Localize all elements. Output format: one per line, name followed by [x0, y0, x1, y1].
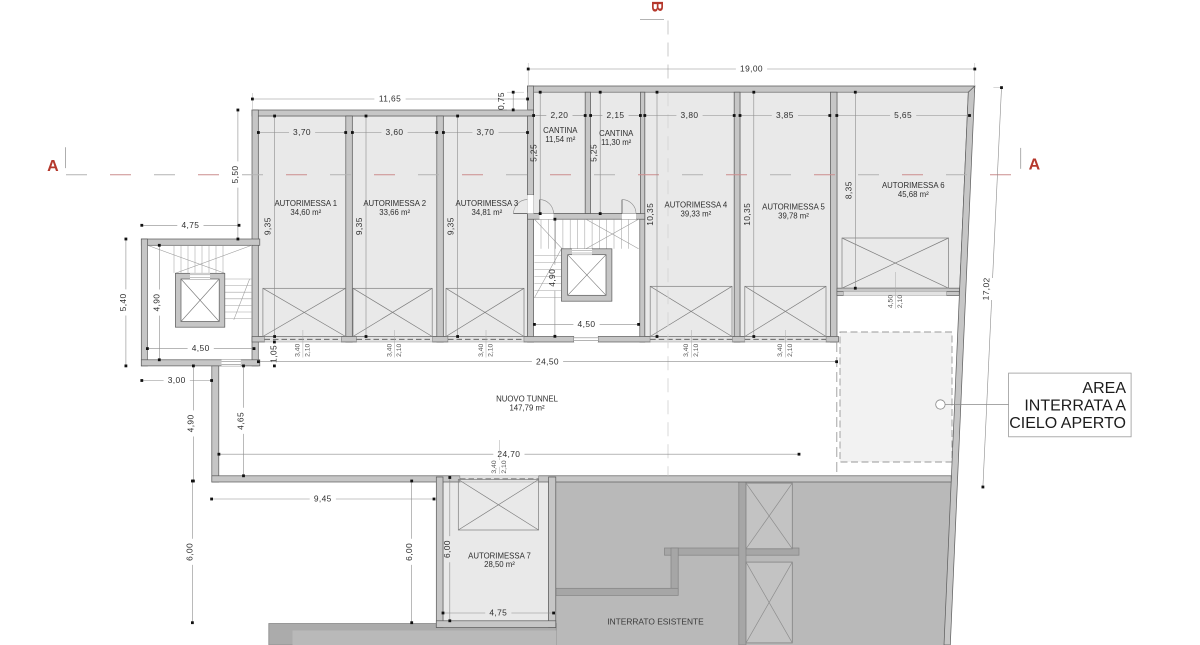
svg-text:2,10: 2,10	[305, 343, 312, 356]
svg-text:5,65: 5,65	[894, 110, 912, 120]
svg-text:4,50: 4,50	[578, 319, 596, 329]
svg-text:1,05: 1,05	[269, 345, 279, 363]
svg-text:AUTORIMESSA 4: AUTORIMESSA 4	[665, 201, 728, 210]
svg-text:0,75: 0,75	[496, 92, 506, 110]
svg-text:4,90: 4,90	[186, 414, 196, 432]
svg-text:6,00: 6,00	[185, 543, 195, 561]
svg-text:4,75: 4,75	[181, 220, 199, 230]
svg-text:6,00: 6,00	[442, 540, 452, 558]
svg-text:9,35: 9,35	[446, 217, 456, 235]
svg-text:10,35: 10,35	[645, 203, 655, 226]
svg-text:8,35: 8,35	[843, 181, 853, 199]
svg-text:5,50: 5,50	[230, 166, 240, 184]
svg-text:A: A	[47, 158, 59, 175]
svg-text:3,40: 3,40	[295, 343, 302, 356]
svg-text:24,50: 24,50	[536, 356, 559, 366]
svg-text:INTERRATO ESISTENTE: INTERRATO ESISTENTE	[607, 617, 704, 627]
svg-text:NUOVO TUNNEL: NUOVO TUNNEL	[496, 395, 558, 404]
svg-text:3,00: 3,00	[168, 375, 186, 385]
svg-text:INTERRATA A: INTERRATA A	[1024, 398, 1126, 415]
svg-text:3,70: 3,70	[476, 127, 494, 137]
svg-text:AREA: AREA	[1082, 380, 1126, 397]
svg-text:39,78 m²: 39,78 m²	[778, 212, 809, 221]
svg-text:5,40: 5,40	[118, 293, 128, 311]
svg-text:39,33 m²: 39,33 m²	[681, 210, 712, 219]
svg-text:11,65: 11,65	[379, 94, 401, 104]
svg-text:5,25: 5,25	[588, 144, 598, 162]
svg-text:28,50 m²: 28,50 m²	[484, 560, 515, 569]
svg-text:9,35: 9,35	[354, 217, 364, 235]
svg-text:4,75: 4,75	[489, 608, 507, 618]
svg-text:3,40: 3,40	[491, 460, 498, 473]
svg-text:33,66 m²: 33,66 m²	[379, 208, 410, 217]
svg-text:19,00: 19,00	[740, 64, 763, 74]
svg-text:4,90: 4,90	[547, 269, 557, 287]
svg-text:11,54 m²: 11,54 m²	[545, 135, 576, 144]
svg-text:AUTORIMESSA 6: AUTORIMESSA 6	[882, 181, 945, 190]
svg-text:2,10: 2,10	[897, 295, 904, 308]
svg-text:2,15: 2,15	[607, 110, 625, 120]
svg-text:3,60: 3,60	[386, 127, 404, 137]
svg-text:AUTORIMESSA 5: AUTORIMESSA 5	[762, 203, 825, 212]
svg-text:CANTINA: CANTINA	[543, 126, 578, 135]
svg-text:2,10: 2,10	[396, 343, 403, 356]
svg-text:2,20: 2,20	[550, 110, 568, 120]
svg-text:11,30 m²: 11,30 m²	[601, 138, 632, 147]
svg-text:4,90: 4,90	[152, 294, 162, 312]
svg-text:3,80: 3,80	[681, 110, 699, 120]
svg-text:9,35: 9,35	[263, 217, 273, 235]
svg-text:3,40: 3,40	[478, 343, 485, 356]
svg-text:2,10: 2,10	[787, 343, 794, 356]
svg-text:147,79 m²: 147,79 m²	[509, 404, 545, 413]
svg-text:3,70: 3,70	[293, 127, 311, 137]
svg-text:4,65: 4,65	[236, 412, 246, 430]
svg-text:4,50: 4,50	[192, 343, 210, 353]
svg-text:17,02: 17,02	[980, 277, 991, 300]
svg-text:45,68 m²: 45,68 m²	[898, 190, 929, 199]
svg-text:6,00: 6,00	[404, 543, 414, 561]
svg-text:3,85: 3,85	[776, 110, 794, 120]
svg-text:2,10: 2,10	[501, 460, 508, 473]
svg-text:4,50: 4,50	[887, 295, 894, 308]
svg-text:3,40: 3,40	[683, 343, 690, 356]
svg-text:AUTORIMESSA 2: AUTORIMESSA 2	[363, 199, 426, 208]
svg-text:10,35: 10,35	[742, 203, 752, 226]
svg-text:B: B	[648, 1, 665, 13]
svg-text:24,70: 24,70	[497, 449, 520, 459]
svg-text:34,60 m²: 34,60 m²	[290, 208, 321, 217]
svg-text:3,40: 3,40	[777, 343, 784, 356]
svg-text:9,45: 9,45	[314, 494, 332, 504]
svg-text:2,10: 2,10	[693, 343, 700, 356]
svg-text:CANTINA: CANTINA	[599, 129, 634, 138]
svg-text:CIELO APERTO: CIELO APERTO	[1009, 415, 1126, 432]
svg-text:2,10: 2,10	[488, 343, 495, 356]
svg-text:AUTORIMESSA 3: AUTORIMESSA 3	[456, 199, 519, 208]
svg-text:5,25: 5,25	[528, 144, 538, 162]
svg-text:34,81 m²: 34,81 m²	[472, 208, 503, 217]
svg-text:3,40: 3,40	[386, 343, 393, 356]
svg-text:A: A	[1029, 156, 1041, 173]
svg-text:AUTORIMESSA 1: AUTORIMESSA 1	[274, 199, 337, 208]
